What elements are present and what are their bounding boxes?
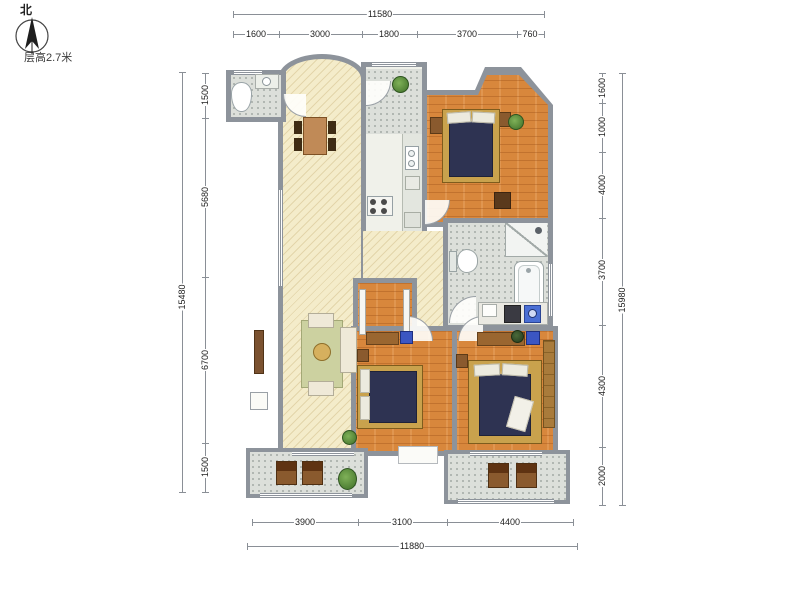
dim-tick: [619, 73, 626, 74]
cabinet-icon: [250, 392, 268, 410]
plant-icon: [392, 76, 409, 93]
armchair-icon: [308, 381, 334, 396]
dim-label-left-seg: 6700: [200, 349, 210, 371]
dim-label-left-total: 15480: [177, 283, 187, 310]
dim-tick: [599, 325, 606, 326]
dim-tick: [362, 31, 363, 38]
chair-icon: [494, 192, 511, 209]
dim-tick: [202, 492, 209, 493]
tv-icon: [400, 331, 413, 344]
plant-icon: [338, 468, 357, 490]
dim-tick: [599, 103, 606, 104]
dim-label-right-seg: 1000: [597, 116, 607, 138]
lounge-chair-icon: [302, 461, 323, 485]
dim-label-left-seg: 1500: [200, 84, 210, 106]
bed-mattress: [369, 371, 417, 423]
dim-tick: [599, 505, 606, 506]
dim-label-top-seg: 760: [521, 29, 538, 39]
plant-icon: [511, 330, 524, 343]
dim-label-bottom-seg: 3900: [294, 517, 316, 527]
dim-tick: [233, 11, 234, 18]
dim-tick: [599, 447, 606, 448]
dim-label-bottom-seg: 4400: [499, 517, 521, 527]
sink-basin-icon: [262, 77, 271, 86]
dim-tick: [517, 31, 518, 38]
dim-tick: [202, 118, 209, 119]
dim-tick: [202, 443, 209, 444]
window: [292, 451, 354, 456]
burner-icon: [381, 208, 387, 214]
nightstand-icon: [357, 349, 369, 362]
window: [458, 499, 554, 504]
dining-chair-icon: [328, 138, 336, 151]
dim-tick: [599, 73, 606, 74]
dim-label-top-seg: 1800: [378, 29, 400, 39]
plant-icon: [508, 114, 524, 130]
dim-tick: [417, 31, 418, 38]
lounge-chair-icon: [276, 461, 297, 485]
fridge-icon: [404, 212, 421, 228]
dishwasher-icon: [405, 176, 420, 190]
tv-icon: [526, 331, 540, 345]
dining-chair-icon: [328, 121, 336, 134]
drain-icon: [526, 268, 531, 273]
dim-label-top-seg: 3700: [456, 29, 478, 39]
dim-label-right-seg: 3700: [597, 259, 607, 281]
dim-tick: [577, 543, 578, 550]
dim-tick: [247, 543, 248, 550]
dim-label-right-seg: 2000: [597, 465, 607, 487]
washer-door-icon: [528, 309, 537, 318]
toilet-tank: [449, 251, 457, 272]
toilet-icon: [457, 249, 478, 273]
dim-label-right-total: 15980: [617, 286, 627, 313]
wardrobe-door: [359, 289, 366, 335]
pillow-icon: [472, 111, 496, 123]
dim-label-bottom-seg: 3100: [391, 517, 413, 527]
dim-line-left-segments: [205, 73, 206, 492]
tv-cabinet-icon: [254, 330, 264, 374]
burner-icon: [370, 208, 376, 214]
pillow-icon: [474, 363, 501, 376]
lounge-chair-icon: [488, 463, 509, 488]
wardrobe-icon: [543, 340, 555, 428]
shower-head-icon: [535, 227, 542, 234]
coffee-table-icon: [313, 343, 331, 361]
burner-icon: [381, 199, 387, 205]
dim-label-top-seg: 1600: [245, 29, 267, 39]
desk-icon: [366, 332, 399, 345]
dim-tick: [179, 492, 186, 493]
dim-tick: [179, 72, 186, 73]
dim-tick: [599, 218, 606, 219]
dim-tick: [202, 73, 209, 74]
window: [548, 264, 553, 316]
dim-tick: [358, 519, 359, 526]
dim-tick: [233, 31, 234, 38]
dim-tick: [252, 519, 253, 526]
window: [278, 190, 283, 286]
sofa-icon: [340, 327, 357, 373]
dim-label-left-seg: 5680: [200, 186, 210, 208]
dim-tick: [544, 31, 545, 38]
dim-tick: [279, 31, 280, 38]
dim-tick: [573, 519, 574, 526]
dim-tick: [447, 519, 448, 526]
window: [260, 493, 352, 498]
floor-plan-page: { "annotations": { "north_label": "北", "…: [0, 0, 800, 600]
floor-height-note: 层高2.7米: [24, 49, 72, 65]
sink-basin-icon: [408, 150, 415, 157]
pillow-icon: [447, 111, 472, 124]
dining-chair-icon: [294, 121, 302, 134]
dim-label-right-seg: 4000: [597, 174, 607, 196]
entry-step: [398, 446, 438, 464]
dim-tick: [619, 505, 626, 506]
armchair-icon: [308, 313, 334, 328]
dim-label-left-seg: 1500: [200, 456, 210, 478]
cabinet-icon: [504, 305, 521, 323]
sink-basin-icon: [408, 160, 415, 167]
dim-label-bottom-total: 11880: [399, 541, 425, 551]
pillow-icon: [360, 369, 370, 393]
dim-tick: [202, 277, 209, 278]
pillow-icon: [360, 396, 370, 420]
dim-tick: [544, 11, 545, 18]
dim-label-top-total: 11580: [367, 9, 393, 19]
burner-icon: [370, 199, 376, 205]
plant-icon: [342, 430, 357, 445]
dim-label-top-seg: 3000: [309, 29, 331, 39]
window: [372, 62, 416, 67]
pillow-icon: [502, 363, 529, 377]
dining-table-icon: [303, 117, 327, 155]
dim-line-left-total: [182, 72, 183, 492]
wardrobe-door: [403, 289, 410, 335]
sink-basin-icon: [482, 304, 497, 317]
window: [470, 451, 542, 456]
dim-label-right-seg: 4300: [597, 375, 607, 397]
lounge-chair-icon: [516, 463, 537, 488]
bed-mattress: [449, 121, 493, 177]
dim-label-right-seg: 1600: [597, 77, 607, 99]
dim-tick: [599, 152, 606, 153]
nightstand-icon: [456, 354, 468, 368]
dining-chair-icon: [294, 138, 302, 151]
